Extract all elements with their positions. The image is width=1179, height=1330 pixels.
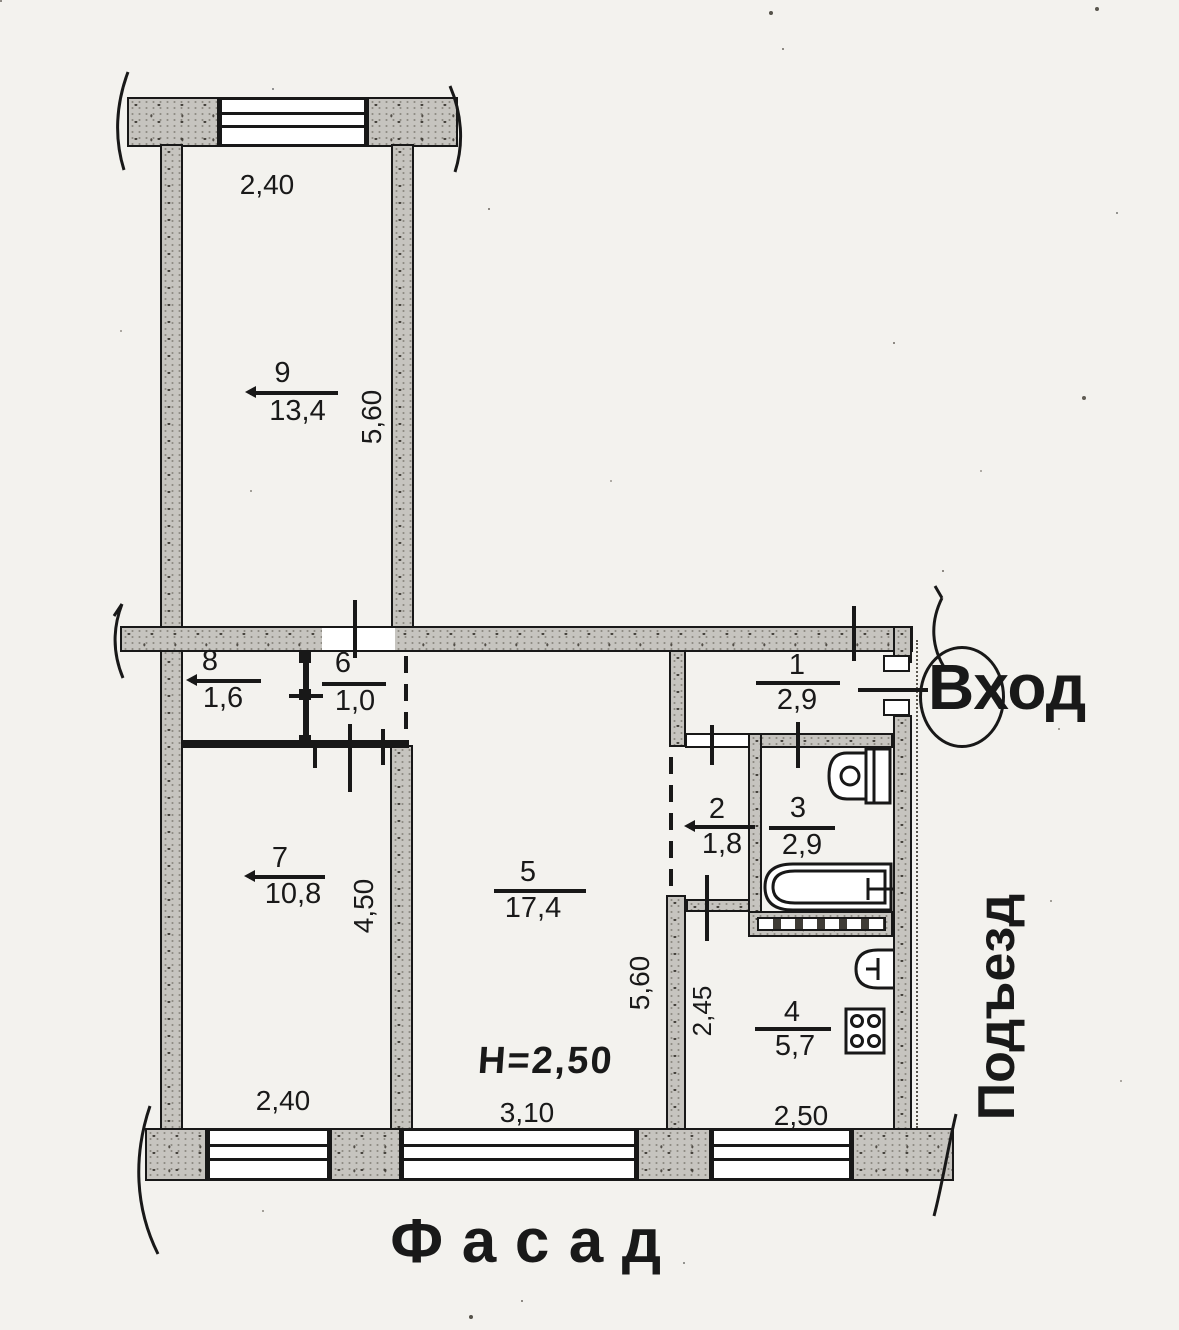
wall-room5-room1 xyxy=(669,650,686,747)
bathtub-icon xyxy=(765,864,893,910)
room-3-number: 3 xyxy=(768,793,828,825)
dim-top-width: 2,40 xyxy=(207,170,327,201)
balcony-top-wall-left-pier xyxy=(127,97,219,147)
dim-bottom-middle: 3,10 xyxy=(467,1098,587,1129)
entrance-circle-mark xyxy=(919,646,1005,748)
room-9-divider xyxy=(250,391,338,395)
dim-bottom-left: 2,40 xyxy=(223,1086,343,1117)
room-4-area: 5,7 xyxy=(763,1031,827,1063)
room-3-area: 2,9 xyxy=(771,830,833,862)
entrance-door-line xyxy=(858,688,928,692)
floor-plan: 9 13,4 8 1,6 6 1,0 7 10,8 5 17,4 1 2,9 2… xyxy=(0,0,1179,1330)
ceiling-height-note: H=2,50 xyxy=(476,1040,615,1083)
dim-room5-depth: 5,60 xyxy=(625,933,655,1033)
bottom-wall-pier-2 xyxy=(637,1128,711,1181)
vent-duct-strip xyxy=(757,917,886,931)
cross-wall-axis-tick xyxy=(852,606,856,661)
room1-bottom-partition xyxy=(685,733,751,748)
opening-room5-room2 xyxy=(669,757,673,889)
room-7-area: 10,8 xyxy=(252,879,334,911)
right-wall-outer-line xyxy=(916,640,918,1128)
room-8-area: 1,6 xyxy=(192,683,254,715)
dim-bottom-right: 2,50 xyxy=(741,1101,861,1132)
bottom-window-room5 xyxy=(401,1128,637,1181)
corridor-bottom-wall xyxy=(686,899,750,912)
wall-room7-room5 xyxy=(390,745,413,1130)
room-5-number: 5 xyxy=(498,857,558,889)
room-9-area: 13,4 xyxy=(245,396,350,428)
right-exterior-wall-lower xyxy=(893,715,912,1130)
room-7-number: 7 xyxy=(250,843,310,875)
door-tick-room1-room2 xyxy=(710,725,714,765)
dim-room9-depth: 5,60 xyxy=(357,367,387,467)
bottom-window-room4 xyxy=(711,1128,852,1181)
paper-noise xyxy=(0,0,2,2)
door-tick-room2-room4 xyxy=(705,875,709,941)
room-1-area: 2,9 xyxy=(756,685,838,717)
wall-room5-room4 xyxy=(666,895,686,1130)
entrance-door-jamb-bottom xyxy=(883,699,910,716)
partition-nub-top xyxy=(299,652,311,663)
bathroom-top-wall xyxy=(750,733,893,748)
sink-icon xyxy=(856,950,893,988)
bottom-wall-corner-left xyxy=(145,1128,207,1181)
room-1-number: 1 xyxy=(767,650,827,682)
door-tick-room3 xyxy=(796,722,800,768)
bottom-wall-corner-right xyxy=(852,1128,954,1181)
room-2-area: 1,8 xyxy=(691,829,753,861)
bottom-wall-pier-1 xyxy=(330,1128,401,1181)
stairwell-label: Подъезд xyxy=(971,862,1023,1152)
dim-room7-depth: 4,50 xyxy=(349,856,379,956)
room-6-area: 1,0 xyxy=(324,686,386,718)
balcony-top-wall-right-pier xyxy=(367,97,458,147)
stove-icon xyxy=(846,1009,884,1053)
room-2-number: 2 xyxy=(687,794,747,826)
entrance-door-jamb-top xyxy=(883,655,910,672)
toilet-icon xyxy=(829,749,890,803)
opening-room6-room5 xyxy=(404,656,408,736)
door-tick-closet-c xyxy=(381,729,385,765)
door-tick-closet-b xyxy=(348,724,352,792)
closet-bottom-wall xyxy=(182,740,409,748)
room-6-number: 6 xyxy=(313,648,373,680)
room9-right-wall xyxy=(391,144,414,650)
dim-hall-depth: 2,45 xyxy=(687,961,717,1061)
facade-label: Фасад xyxy=(345,1206,725,1277)
bottom-window-room7 xyxy=(207,1128,330,1181)
balcony-window xyxy=(219,97,367,147)
room-5-area: 17,4 xyxy=(492,893,574,925)
door-tick-room8-room6 xyxy=(289,694,323,698)
room-4-number: 4 xyxy=(762,997,822,1029)
door-tick-closet-a xyxy=(313,748,317,768)
